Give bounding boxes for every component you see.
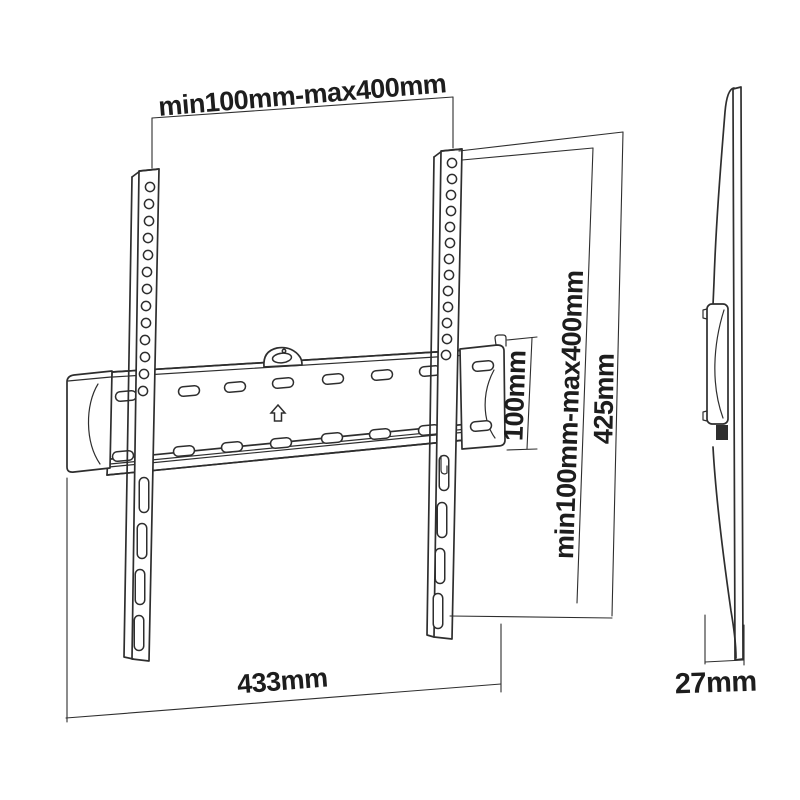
side-view: 27mm: [674, 87, 757, 700]
plate-left-end-cap: [67, 371, 112, 472]
front-view: min100mm-max400mm 100mm min100mm-max400m…: [66, 68, 623, 722]
side-wall-bar: [733, 87, 743, 660]
depth-label: 27mm: [674, 666, 757, 701]
vesa-height-label: min100mm-max400mm: [549, 270, 589, 560]
side-bottom-hook: [716, 425, 728, 440]
hanger-tab-icon: [264, 348, 302, 367]
side-plate-bracket: [703, 304, 728, 440]
technical-drawing-canvas: min100mm-max400mm 100mm min100mm-max400m…: [0, 0, 800, 800]
side-profile-upper: [713, 88, 734, 305]
side-profile-lower: [713, 447, 736, 658]
dimension-vesa-width: min100mm-max400mm: [152, 68, 453, 168]
vesa-width-label: min100mm-max400mm: [157, 68, 447, 122]
total-width-label: 433mm: [236, 663, 329, 700]
dimension-depth: 27mm: [674, 615, 757, 700]
plate-height-label: 100mm: [498, 350, 531, 442]
dimension-plate-height: 100mm: [498, 337, 537, 450]
tv-wall-mount-technical-drawing: min100mm-max400mm 100mm min100mm-max400m…: [0, 0, 800, 800]
total-height-label: 425mm: [588, 353, 620, 444]
